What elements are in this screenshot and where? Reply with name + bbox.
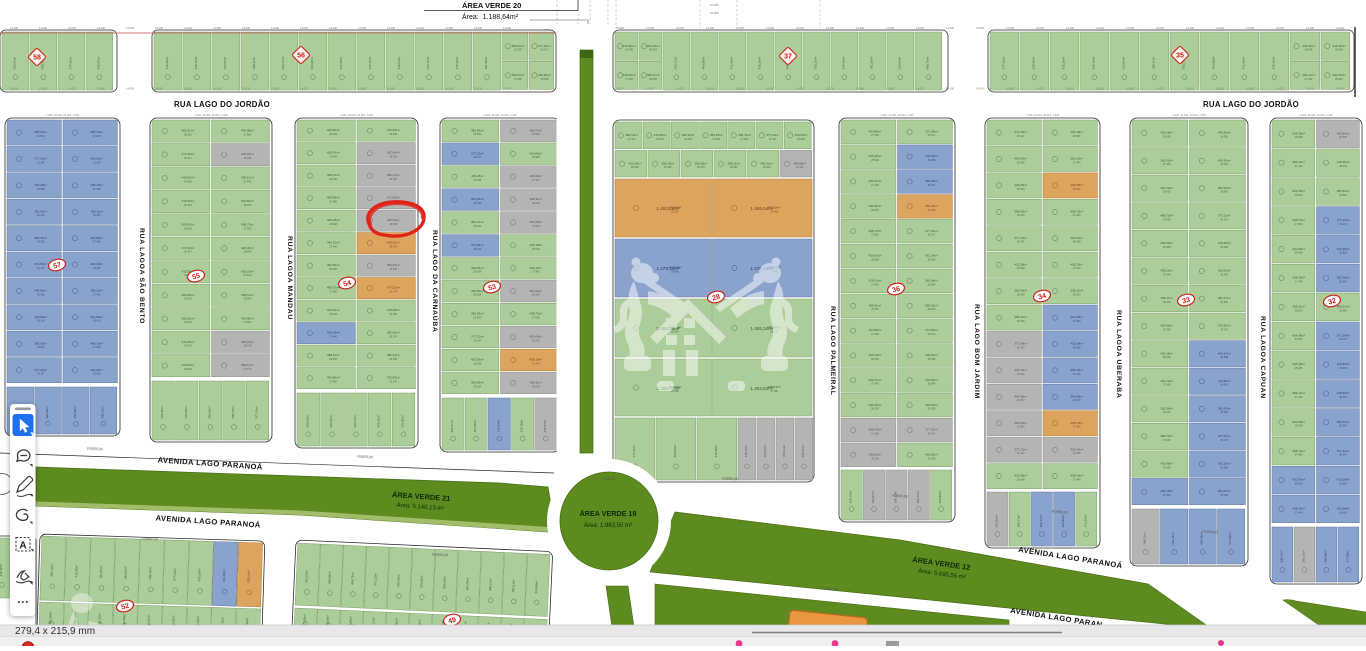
svg-text:28.304: 28.304 [1220,384,1228,387]
svg-text:RUA LAGO DO JORDÃO: RUA LAGO DO JORDÃO [1203,100,1299,109]
svg-text:26.500: 26.500 [473,225,481,228]
svg-text:28.000: 28.000 [329,358,337,361]
svg-text:371,59m²: 371,59m² [1083,515,1087,528]
svg-text:31.000: 31.000 [710,11,719,15]
svg-text:391,50m²: 391,50m² [1160,407,1173,411]
svg-text:382,31m²: 382,31m² [1218,296,1231,300]
svg-text:14.000: 14.000 [358,87,366,91]
svg-text:14.000: 14.000 [1246,26,1254,30]
svg-text:391,50m²: 391,50m² [184,406,188,419]
svg-text:28.000: 28.000 [1295,194,1303,197]
svg-text:377,22m²: 377,22m² [1001,57,1005,70]
svg-text:28.304: 28.304 [1339,396,1347,399]
svg-text:ÁREA VERDE 19: ÁREA VERDE 19 [580,509,637,518]
svg-text:366,12m²: 366,12m² [353,415,357,428]
svg-text:428,19m²: 428,19m² [327,151,340,155]
svg-text:14.000: 14.000 [676,26,684,30]
svg-text:R3050,00: R3050,00 [87,447,103,452]
svg-text:404,98m²: 404,98m² [701,57,705,70]
svg-text:382,31m²: 382,31m² [471,220,484,224]
svg-text:27.440: 27.440 [1073,479,1081,482]
svg-text:30.147: 30.147 [1339,223,1347,226]
svg-text:28.938: 28.938 [1295,252,1303,255]
svg-text:377,22m²: 377,22m² [925,229,938,233]
svg-text:26.500: 26.500 [1220,301,1228,304]
svg-text:404,98m²: 404,98m² [1061,515,1065,528]
svg-text:28.938: 28.938 [871,159,879,162]
svg-text:27.660: 27.660 [532,317,540,320]
svg-text:382,31m²: 382,31m² [182,129,195,133]
svg-text:27.440: 27.440 [244,368,252,371]
svg-text:440,54m²: 440,54m² [397,57,401,70]
svg-text:26.938: 26.938 [928,259,936,262]
svg-text:391,50m²: 391,50m² [1333,73,1346,77]
svg-text:371,59m²: 371,59m² [1218,324,1231,328]
svg-text:28.938: 28.938 [1163,356,1171,359]
svg-text:28.000: 28.000 [871,308,879,311]
svg-text:420,00m²: 420,00m² [327,128,340,132]
svg-text:26.500: 26.500 [1339,309,1347,312]
svg-text:428,19m²: 428,19m² [327,331,340,335]
svg-text:26.500: 26.500 [37,135,45,138]
svg-text:404,98m²: 404,98m² [1200,532,1204,545]
svg-text:28.000: 28.000 [1073,188,1081,191]
svg-text:420,00m²: 420,00m² [795,133,808,137]
svg-text:27.440: 27.440 [664,166,672,169]
svg-text:26.500: 26.500 [184,321,192,324]
svg-text:391,50m²: 391,50m² [1292,189,1305,193]
svg-text:440,54m²: 440,54m² [1014,368,1027,372]
svg-text:26.938: 26.938 [928,457,936,460]
svg-text:362,06m²: 362,06m² [34,209,47,213]
svg-text:398,11m²: 398,11m² [782,445,786,457]
svg-text:362,06m²: 362,06m² [73,406,77,419]
svg-text:14.000: 14.000 [706,26,714,30]
svg-text:RUA LAGOA UBERABA: RUA LAGOA UBERABA [1115,310,1122,398]
svg-text:26.938: 26.938 [389,223,397,226]
svg-text:14.000: 14.000 [976,26,984,30]
svg-text:28.000: 28.000 [1163,411,1171,414]
svg-text:28.938: 28.938 [1163,466,1171,469]
svg-text:418,36m²: 418,36m² [182,199,195,203]
svg-text:383,93m²: 383,93m² [512,44,525,48]
svg-text:28.304: 28.304 [473,202,481,205]
svg-text:404,98m²: 404,98m² [1323,550,1327,563]
svg-text:366,12m²: 366,12m² [1292,160,1305,164]
svg-text:371,59m²: 371,59m² [496,420,500,433]
svg-text:377,22m²: 377,22m² [1014,447,1027,451]
svg-text:14.000: 14.000 [39,26,47,30]
svg-text:398,11m²: 398,11m² [647,73,659,77]
svg-text:391,50m²: 391,50m² [99,566,103,579]
svg-text:398,11m²: 398,11m² [327,353,339,357]
svg-text:26.938: 26.938 [928,159,936,162]
svg-text:26.938: 26.938 [1017,373,1025,376]
svg-text:R3050,00: R3050,00 [722,477,738,482]
svg-text:14.000: 14.000 [68,26,76,30]
svg-text:58: 58 [33,55,41,62]
svg-text:14.000: 14.000 [946,26,954,30]
svg-text:420,00m²: 420,00m² [96,57,100,70]
svg-text:440,54m²: 440,54m² [1337,362,1350,366]
svg-text:30.147: 30.147 [928,433,936,436]
svg-text:RUA LAGOA MANDAU: RUA LAGOA MANDAU [286,236,293,320]
svg-text:420,00m²: 420,00m² [1160,462,1173,466]
svg-text:425,18m²: 425,18m² [520,420,524,433]
svg-text:383,93m²: 383,93m² [897,57,901,70]
svg-text:362,06m²: 362,06m² [1218,269,1231,273]
svg-text:7.945 23.004 23.004 7.945: 7.945 23.004 23.004 7.945 [483,113,517,117]
svg-text:382,31m²: 382,31m² [281,57,285,70]
svg-text:26.938: 26.938 [631,166,639,169]
svg-text:382,31m²: 382,31m² [450,420,454,433]
svg-text:366,12m²: 366,12m² [241,363,254,367]
svg-text:408,73m²: 408,73m² [327,286,340,290]
svg-text:27.660: 27.660 [741,138,749,141]
svg-text:27.440: 27.440 [93,293,101,296]
svg-text:RUA LAGO BOM JARDIM: RUA LAGO BOM JARDIM [973,304,980,399]
svg-text:26.500: 26.500 [389,358,397,361]
svg-text:14.000: 14.000 [1126,26,1134,30]
svg-text:428,19m²: 428,19m² [45,406,49,419]
svg-text:7.945 23.004 23.004 7.945: 7.945 23.004 23.004 7.945 [340,113,374,117]
svg-text:383,93m²: 383,93m² [925,403,938,407]
svg-text:28.938: 28.938 [244,251,252,254]
svg-text:362,06m²: 362,06m² [763,445,767,458]
svg-text:408,73m²: 408,73m² [90,341,103,345]
svg-text:362,06m²: 362,06m² [1014,289,1027,293]
svg-text:1.463,54m²: 1.463,54m² [750,386,774,391]
svg-text:30.147: 30.147 [37,161,45,164]
svg-text:27.440: 27.440 [1295,281,1303,284]
svg-text:26.500: 26.500 [473,317,481,320]
svg-text:27.440: 27.440 [1073,267,1081,270]
svg-text:28.304: 28.304 [473,294,481,297]
svg-text:27.660: 27.660 [1163,218,1171,221]
svg-text:404,98m²: 404,98m² [1211,57,1215,70]
svg-text:371,59m²: 371,59m² [387,376,400,380]
svg-text:398,11m²: 398,11m² [1160,296,1172,300]
svg-text:28.000: 28.000 [1073,294,1081,297]
svg-text:28.304: 28.304 [184,204,192,207]
svg-text:28.000: 28.000 [1163,301,1171,304]
svg-text:383,93m²: 383,93m² [182,223,195,227]
svg-text:14.000: 14.000 [97,87,105,91]
svg-text:415,28m²: 415,28m² [222,569,226,582]
svg-text:415,28m²: 415,28m² [165,57,169,70]
svg-text:440,54m²: 440,54m² [329,415,333,428]
svg-text:377,22m²: 377,22m² [387,286,400,290]
svg-text:371,59m²: 371,59m² [471,243,484,247]
svg-text:14.000: 14.000 [358,26,366,30]
svg-text:440,54m²: 440,54m² [925,154,938,158]
svg-text:415,28m²: 415,28m² [623,44,636,48]
svg-text:366,12m²: 366,12m² [1160,158,1173,162]
svg-text:383,93m²: 383,93m² [925,204,938,208]
svg-text:1.462,28m²: 1.462,28m² [656,206,680,211]
svg-text:RUA LAGO PALMEIRAL: RUA LAGO PALMEIRAL [829,306,836,396]
svg-text:14.000: 14.000 [1066,87,1074,91]
svg-text:14.000: 14.000 [916,87,924,91]
svg-text:382,31m²: 382,31m² [387,353,400,357]
svg-text:362,06m²: 362,06m² [387,151,400,155]
svg-text:28.304: 28.304 [656,138,664,141]
svg-text:371,59m²: 371,59m² [1345,550,1349,563]
svg-text:440,54m²: 440,54m² [182,176,195,180]
svg-text:1.479,14m²: 1.479,14m² [656,266,680,271]
svg-text:27.440: 27.440 [871,184,879,187]
svg-text:362,06m²: 362,06m² [1337,507,1350,511]
svg-text:30.147: 30.147 [1339,338,1347,341]
svg-text:26.500: 26.500 [37,241,45,244]
svg-text:420,00m²: 420,00m² [1070,236,1083,240]
svg-text:26.938: 26.938 [184,180,192,183]
svg-text:382,31m²: 382,31m² [916,491,920,504]
svg-text:391,50m²: 391,50m² [869,403,882,407]
svg-text:408,73m²: 408,73m² [1070,209,1083,213]
svg-text:27.440: 27.440 [329,336,337,339]
svg-text:30.147: 30.147 [473,340,481,343]
svg-text:30.147: 30.147 [1017,135,1025,138]
svg-text:404,98m²: 404,98m² [1160,324,1173,328]
svg-text:371,59m²: 371,59m² [339,57,343,70]
svg-text:425,18m²: 425,18m² [1070,130,1083,134]
svg-text:27.440: 27.440 [871,283,879,286]
svg-text:408,73m²: 408,73m² [529,312,542,316]
svg-text:RUA LAGOA CAPUAN: RUA LAGOA CAPUAN [1259,316,1266,399]
svg-text:14.000: 14.000 [736,87,744,91]
svg-text:415,28m²: 415,28m² [628,161,641,165]
svg-text:27.000: 27.000 [710,3,719,7]
svg-text:14.000: 14.000 [1066,26,1074,30]
svg-text:26.938: 26.938 [1017,479,1025,482]
svg-text:371,59m²: 371,59m² [182,340,195,344]
svg-text:27.660: 27.660 [329,201,337,204]
svg-text:415,28m²: 415,28m² [714,445,718,458]
svg-text:28.000: 28.000 [684,138,692,141]
svg-text:28.000: 28.000 [93,214,101,217]
svg-text:26.500: 26.500 [37,346,45,349]
svg-text:404,98m²: 404,98m² [473,420,477,433]
svg-text:418,36m²: 418,36m² [1337,391,1350,395]
svg-text:26.938: 26.938 [1339,367,1347,370]
svg-text:382,31m²: 382,31m² [511,579,516,592]
svg-text:362,06m²: 362,06m² [387,331,400,335]
svg-text:366,12m²: 366,12m² [869,378,882,382]
svg-text:30.147: 30.147 [473,156,481,159]
svg-text:28.938: 28.938 [1163,136,1171,139]
svg-text:415,28m²: 415,28m² [471,174,484,178]
svg-text:377,22m²: 377,22m² [766,133,779,137]
svg-text:377,22m²: 377,22m² [182,246,195,250]
svg-text:14.000: 14.000 [416,26,424,30]
svg-text:28.000: 28.000 [532,385,540,388]
svg-text:Área: 1.188,64m²: Área: 1.188,64m² [462,12,519,21]
svg-text:14.000: 14.000 [1246,87,1254,91]
svg-text:377,22m²: 377,22m² [68,57,72,70]
svg-text:428,19m²: 428,19m² [849,491,853,504]
svg-text:28.000: 28.000 [871,209,879,212]
svg-text:27.440: 27.440 [532,179,540,182]
svg-text:418,36m²: 418,36m² [471,289,484,293]
svg-text:14.000: 14.000 [886,26,894,30]
svg-text:14.000: 14.000 [946,87,954,91]
svg-text:30.147: 30.147 [184,251,192,254]
svg-text:415,28m²: 415,28m² [34,183,47,187]
svg-text:404,98m²: 404,98m² [793,161,806,165]
svg-text:428,19m²: 428,19m² [529,358,542,362]
svg-text:28.938: 28.938 [329,133,337,136]
svg-text:27.660: 27.660 [796,166,804,169]
svg-text:404,98m²: 404,98m² [1070,315,1083,319]
svg-text:428,19m²: 428,19m² [869,279,882,283]
svg-text:415,28m²: 415,28m² [1014,262,1027,266]
svg-text:362,06m²: 362,06m² [48,611,52,624]
svg-text:14.000: 14.000 [1006,87,1014,91]
svg-text:383,93m²: 383,93m² [471,128,484,132]
svg-text:415,28m²: 415,28m² [1218,241,1231,245]
svg-text:30.147: 30.147 [184,157,192,160]
svg-text:7.945 23.004 23.004 7.945: 7.945 23.004 23.004 7.945 [880,113,914,117]
svg-text:391,50m²: 391,50m² [529,289,542,293]
svg-text:408,73m²: 408,73m² [529,128,542,132]
svg-text:28.000: 28.000 [1335,78,1343,81]
svg-text:377,22m²: 377,22m² [632,445,636,458]
svg-text:377,22m²: 377,22m² [1218,214,1231,218]
svg-text:R28,00: R28,00 [603,477,615,481]
svg-text:408,73m²: 408,73m² [869,428,882,432]
svg-text:415,28m²: 415,28m² [925,453,938,457]
svg-text:398,11m²: 398,11m² [727,161,739,165]
svg-text:377,22m²: 377,22m² [34,368,47,372]
svg-text:1.455,34m²: 1.455,34m² [750,326,774,331]
svg-text:ÁREA VERDE 20: ÁREA VERDE 20 [462,1,521,10]
svg-text:418,36m²: 418,36m² [160,406,164,419]
svg-text:415,28m²: 415,28m² [1014,474,1027,478]
svg-text:14.000: 14.000 [1186,26,1194,30]
svg-text:30.147: 30.147 [1017,452,1025,455]
svg-text:26.500: 26.500 [1339,425,1347,428]
svg-text:398,11m²: 398,11m² [241,293,253,297]
svg-text:28.000: 28.000 [871,408,879,411]
svg-text:14.000: 14.000 [796,26,804,30]
svg-text:14.000: 14.000 [736,26,744,30]
svg-text:14.000: 14.000 [271,87,279,91]
svg-text:28.938: 28.938 [532,156,540,159]
svg-text:398,11m²: 398,11m² [1143,532,1147,544]
svg-text:27.660: 27.660 [244,227,252,230]
svg-text:383,93m²: 383,93m² [710,133,723,137]
svg-text:391,50m²: 391,50m² [1070,183,1083,187]
svg-text:14.000: 14.000 [1096,26,1104,30]
svg-text:14.000: 14.000 [126,26,134,30]
svg-text:28.938: 28.938 [329,223,337,226]
svg-text:408,73m²: 408,73m² [1070,421,1083,425]
svg-text:28.000: 28.000 [244,204,252,207]
svg-text:418,36m²: 418,36m² [1333,44,1346,48]
svg-text:391,50m²: 391,50m² [327,263,340,267]
svg-text:26.938: 26.938 [389,313,397,316]
svg-text:27.660: 27.660 [1073,214,1081,217]
svg-text:28.000: 28.000 [93,320,101,323]
svg-text:14.000: 14.000 [474,26,482,30]
svg-text:14.000: 14.000 [1276,26,1284,30]
svg-text:27.660: 27.660 [93,135,101,138]
svg-text:28.938: 28.938 [532,248,540,251]
svg-text:14.000: 14.000 [1126,87,1134,91]
svg-text:28.000: 28.000 [1073,399,1081,402]
svg-text:14.000: 14.000 [126,87,134,91]
svg-text:30.147: 30.147 [1017,346,1025,349]
svg-text:28.938: 28.938 [532,340,540,343]
svg-text:383,93m²: 383,93m² [34,341,47,345]
svg-text:A: A [19,541,26,552]
svg-text:28.304: 28.304 [697,166,705,169]
svg-text:418,36m²: 418,36m² [455,57,459,70]
svg-text:26.500: 26.500 [928,308,936,311]
svg-text:391,50m²: 391,50m² [401,415,405,428]
svg-text:382,31m²: 382,31m² [925,303,938,307]
svg-text:26.938: 26.938 [473,271,481,274]
svg-text:362,06m²: 362,06m² [871,491,875,504]
svg-text:382,31m²: 382,31m² [673,57,677,70]
svg-text:14.000: 14.000 [1216,87,1224,91]
svg-text:14.000: 14.000 [1096,87,1104,91]
svg-text:28.304: 28.304 [389,246,397,249]
svg-text:27.660: 27.660 [244,321,252,324]
svg-text:27.660: 27.660 [1163,329,1171,332]
svg-text:26.938: 26.938 [1305,49,1313,52]
svg-text:27.440: 27.440 [1295,165,1303,168]
svg-text:383,93m²: 383,93m² [1218,407,1231,411]
svg-text:28.304: 28.304 [1017,294,1025,297]
svg-text:28.938: 28.938 [1163,246,1171,249]
svg-text:14.000: 14.000 [1156,87,1164,91]
svg-text:428,19m²: 428,19m² [442,576,447,589]
svg-text:404,98m²: 404,98m² [529,220,542,224]
svg-text:27.660: 27.660 [1295,454,1303,457]
svg-text:371,59m²: 371,59m² [925,129,938,133]
svg-text:377,22m²: 377,22m² [373,573,378,586]
svg-text:7.945 23.004 23.004 7.945: 7.945 23.004 23.004 7.945 [1172,113,1206,117]
svg-text:26.500: 26.500 [184,134,192,137]
svg-text:14.000: 14.000 [184,26,192,30]
svg-text:418,36m²: 418,36m² [74,565,78,578]
svg-text:408,73m²: 408,73m² [148,567,152,580]
svg-text:27.660: 27.660 [532,225,540,228]
svg-text:14.000: 14.000 [474,87,482,91]
svg-text:14.000: 14.000 [1306,26,1314,30]
svg-text:425,18m²: 425,18m² [869,353,882,357]
svg-text:428,19m²: 428,19m² [661,161,674,165]
svg-text:382,31m²: 382,31m² [801,445,805,458]
svg-text:425,18m²: 425,18m² [241,152,254,156]
svg-text:28.938: 28.938 [541,78,549,81]
svg-text:14.000: 14.000 [676,87,684,91]
svg-text:404,98m²: 404,98m² [534,581,539,594]
svg-text:14.000: 14.000 [976,87,984,91]
svg-text:428,19m²: 428,19m² [529,174,542,178]
svg-text:383,93m²: 383,93m² [207,406,211,419]
svg-text:28.938: 28.938 [244,345,252,348]
svg-text:28.000: 28.000 [532,294,540,297]
svg-text:366,12m²: 366,12m² [90,289,103,293]
svg-text:366,12m²: 366,12m² [426,57,430,70]
svg-text:398,11m²: 398,11m² [327,173,339,177]
svg-text:14.000: 14.000 [796,87,804,91]
svg-text:398,11m²: 398,11m² [252,57,256,69]
svg-text:362,06m²: 362,06m² [223,57,227,70]
